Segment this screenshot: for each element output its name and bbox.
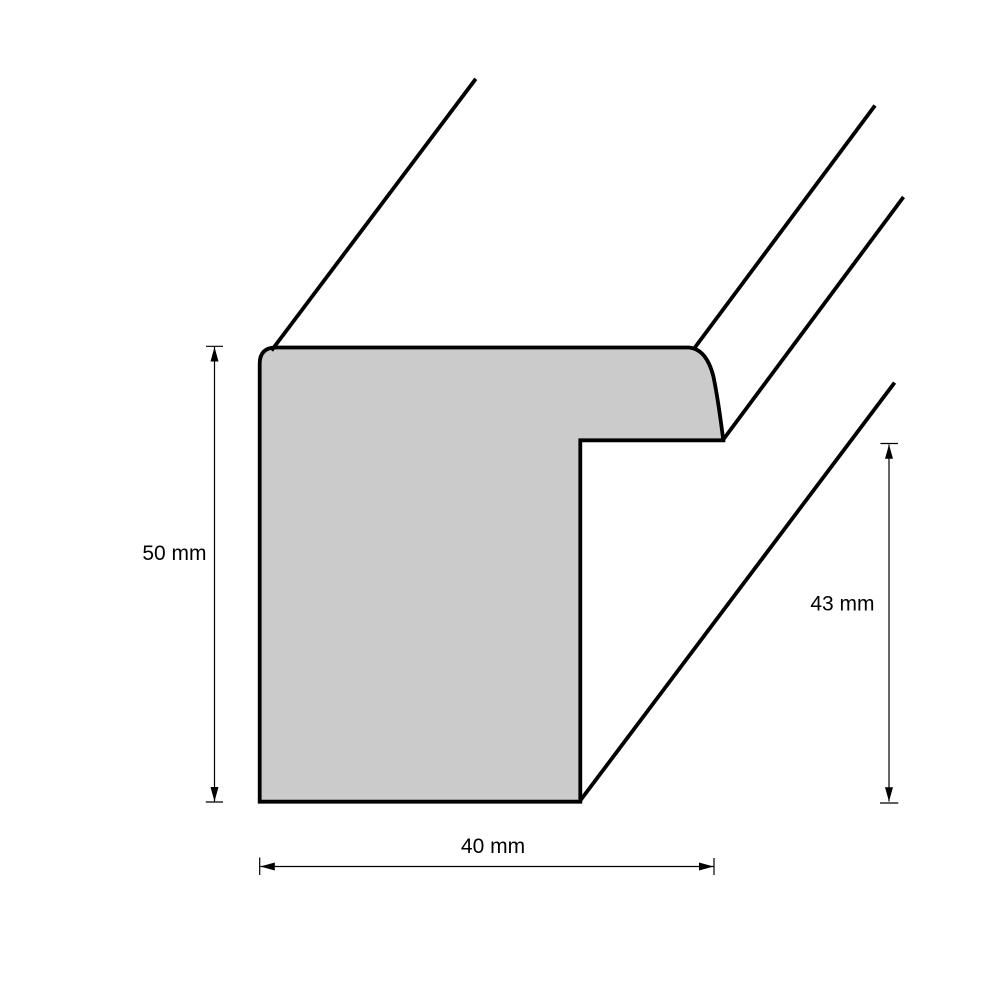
svg-text:50 mm: 50 mm bbox=[142, 542, 206, 565]
svg-text:43 mm: 43 mm bbox=[810, 593, 874, 616]
svg-text:40 mm: 40 mm bbox=[461, 835, 525, 858]
